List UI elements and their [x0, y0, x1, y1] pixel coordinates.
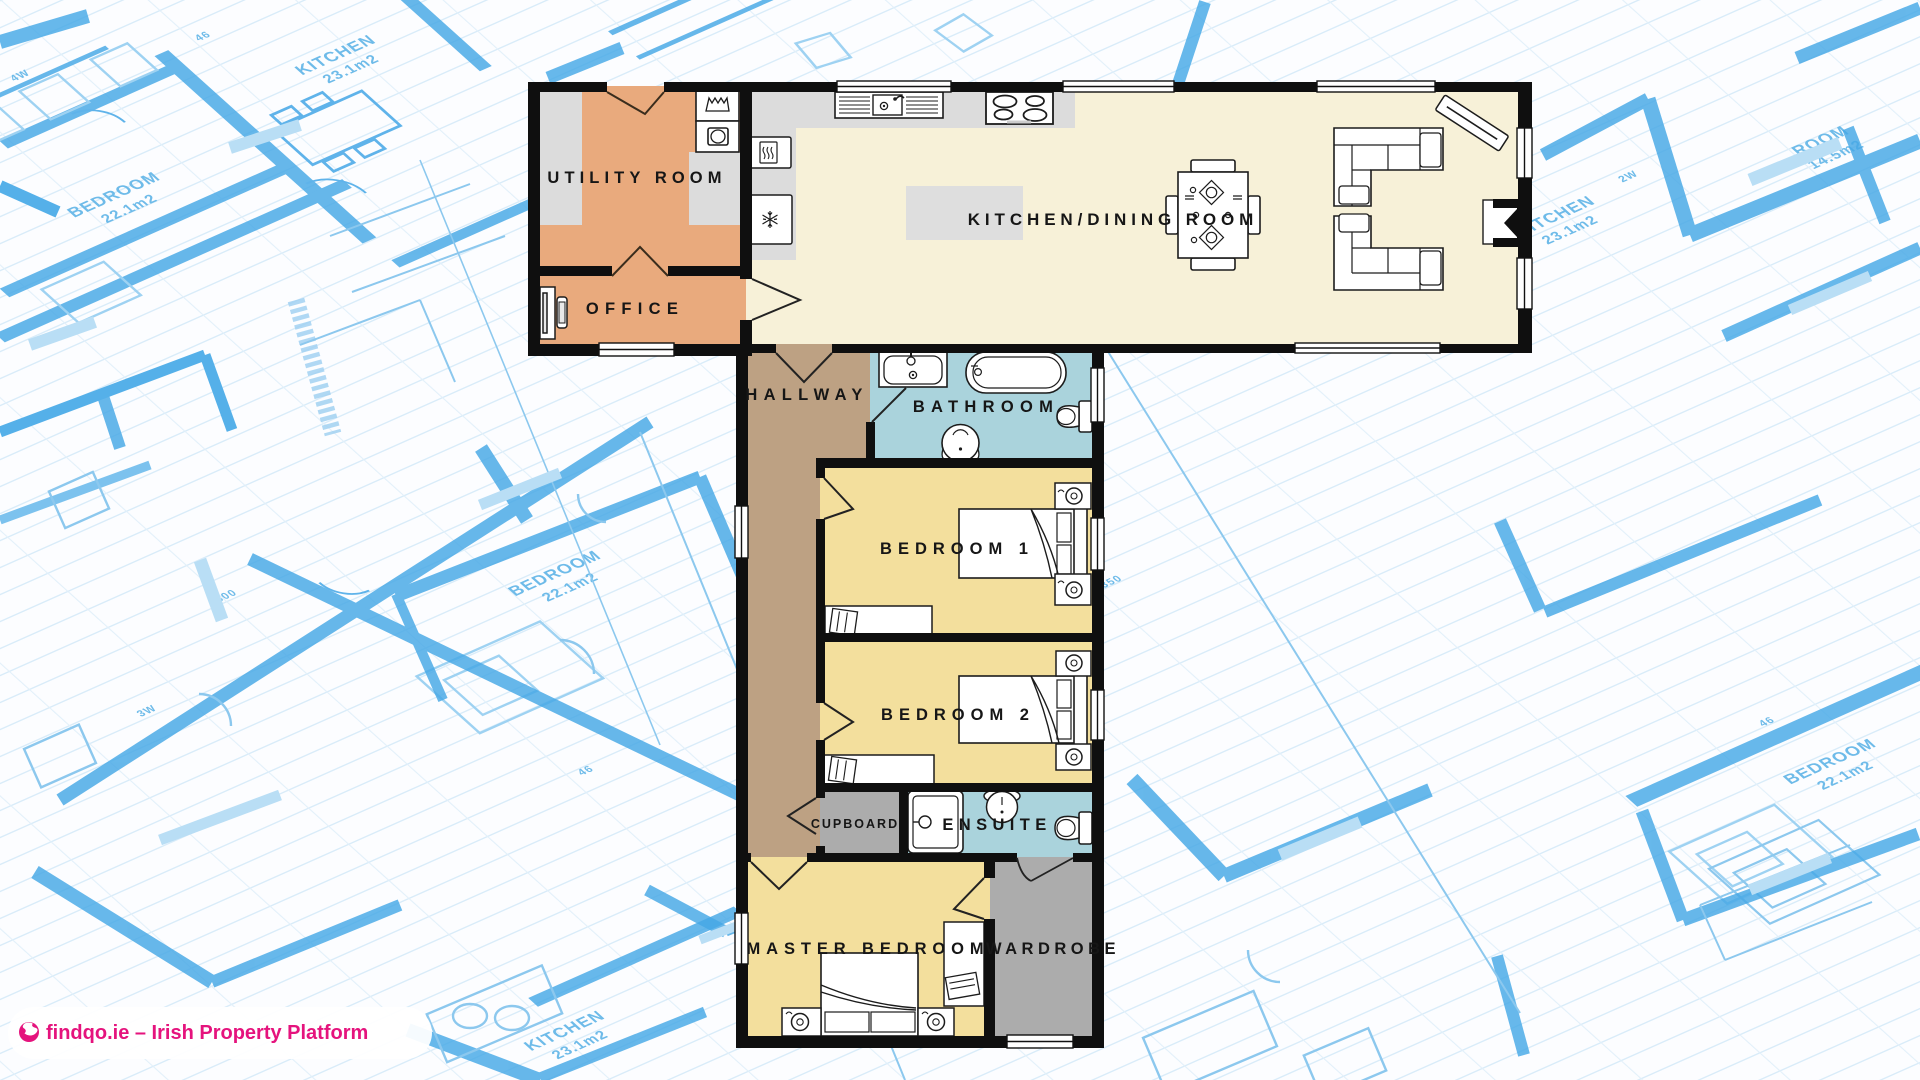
svg-text:UTILITY ROOM: UTILITY ROOM	[547, 169, 726, 187]
svg-text:HALLWAY: HALLWAY	[745, 386, 868, 404]
svg-text:CUPBOARD: CUPBOARD	[811, 817, 899, 831]
svg-text:MASTER BEDROOM: MASTER BEDROOM	[746, 940, 989, 958]
svg-text:BEDROOM 2: BEDROOM 2	[881, 706, 1035, 724]
svg-text:ENSUITE: ENSUITE	[942, 816, 1051, 834]
svg-text:findqo.ie – Irish Property Pla: findqo.ie – Irish Property Platform	[46, 1022, 368, 1044]
svg-text:OFFICE: OFFICE	[586, 300, 684, 318]
svg-text:BATHROOM: BATHROOM	[913, 398, 1059, 416]
svg-text:BEDROOM 1: BEDROOM 1	[880, 540, 1034, 558]
svg-text:WARDROBE: WARDROBE	[986, 940, 1120, 958]
svg-text:KITCHEN/DINING ROOM: KITCHEN/DINING ROOM	[968, 210, 1258, 229]
